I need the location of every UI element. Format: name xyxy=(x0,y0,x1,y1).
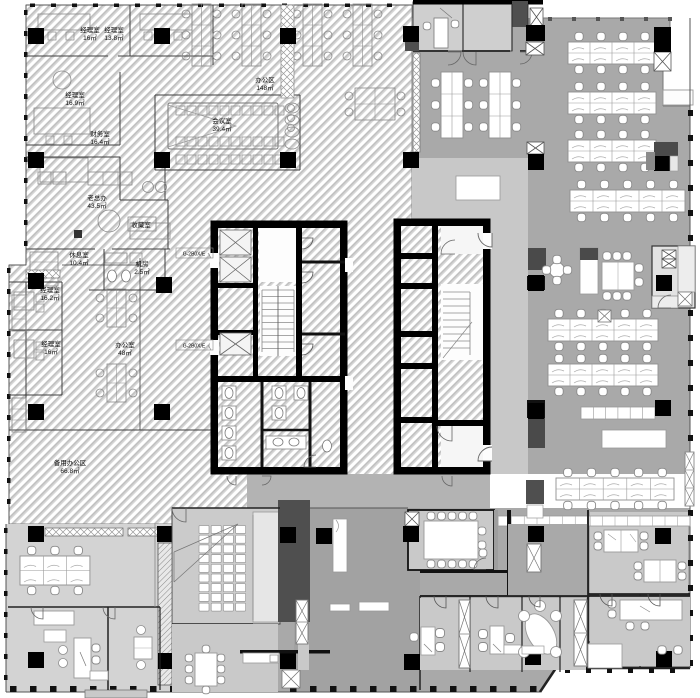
svg-text:经理室: 经理室 xyxy=(41,339,61,348)
svg-text:13.8㎡: 13.8㎡ xyxy=(104,33,124,42)
svg-text:机房: 机房 xyxy=(136,259,149,268)
svg-text:16.2㎡: 16.2㎡ xyxy=(40,293,60,302)
svg-text:2.5㎡: 2.5㎡ xyxy=(134,267,150,276)
svg-text:收藏室: 收藏室 xyxy=(131,220,151,229)
svg-text:16.9㎡: 16.9㎡ xyxy=(65,98,85,107)
svg-text:G-2B0X/E: G-2B0X/E xyxy=(183,252,206,258)
svg-text:办公室: 办公室 xyxy=(115,340,135,349)
svg-text:G-2B0X/E: G-2B0X/E xyxy=(183,344,206,350)
svg-text:休息室: 休息室 xyxy=(69,250,89,259)
svg-text:16.4㎡: 16.4㎡ xyxy=(90,137,110,146)
svg-text:66.8㎡: 66.8㎡ xyxy=(60,466,80,475)
svg-text:43.5㎡: 43.5㎡ xyxy=(87,201,107,210)
svg-text:会议室: 会议室 xyxy=(212,116,232,125)
svg-text:39.4㎡: 39.4㎡ xyxy=(212,124,232,133)
svg-text:经理室: 经理室 xyxy=(104,25,124,34)
svg-text:经理室: 经理室 xyxy=(80,25,100,34)
svg-text:老总办: 老总办 xyxy=(87,193,107,202)
svg-text:备用办公区: 备用办公区 xyxy=(54,458,87,467)
svg-text:10.4㎡: 10.4㎡ xyxy=(69,258,89,267)
svg-text:16㎡: 16㎡ xyxy=(83,33,97,42)
svg-text:16㎡: 16㎡ xyxy=(44,347,58,356)
svg-text:办公区: 办公区 xyxy=(255,75,275,84)
svg-text:财务室: 财务室 xyxy=(90,129,110,138)
svg-text:经理室: 经理室 xyxy=(65,90,85,99)
svg-text:48㎡: 48㎡ xyxy=(118,348,132,357)
svg-text:经理室: 经理室 xyxy=(40,285,60,294)
svg-text:148㎡: 148㎡ xyxy=(256,83,274,92)
